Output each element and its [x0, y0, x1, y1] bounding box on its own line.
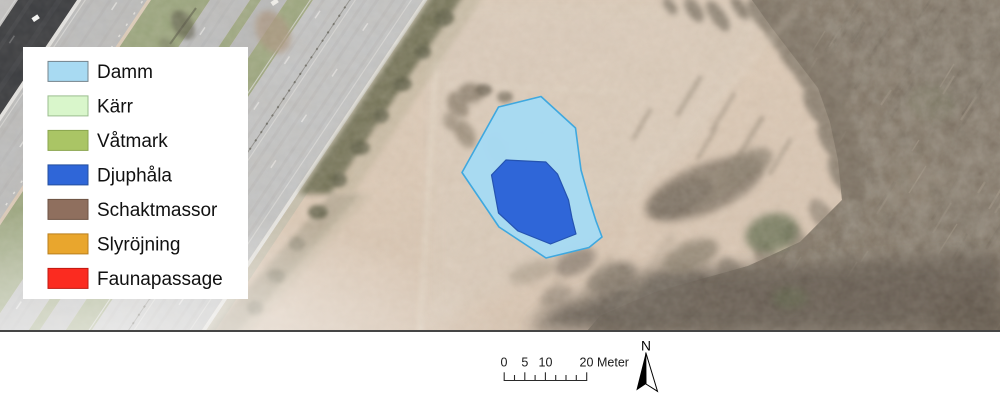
- svg-text:Våtmark: Våtmark: [97, 131, 168, 152]
- svg-text:N: N: [641, 339, 651, 354]
- svg-text:20: 20: [580, 356, 594, 370]
- svg-text:5: 5: [521, 356, 528, 370]
- svg-text:0: 0: [501, 356, 508, 370]
- svg-text:Schaktmassor: Schaktmassor: [97, 200, 218, 221]
- svg-text:Damm: Damm: [97, 62, 153, 83]
- svg-text:Kärr: Kärr: [97, 97, 134, 118]
- svg-text:10: 10: [539, 356, 553, 370]
- svg-text:Meter: Meter: [597, 356, 629, 370]
- svg-text:Faunapassage: Faunapassage: [97, 269, 223, 290]
- svg-text:Djuphåla: Djuphåla: [97, 166, 172, 187]
- svg-text:Slyröjning: Slyröjning: [97, 235, 180, 256]
